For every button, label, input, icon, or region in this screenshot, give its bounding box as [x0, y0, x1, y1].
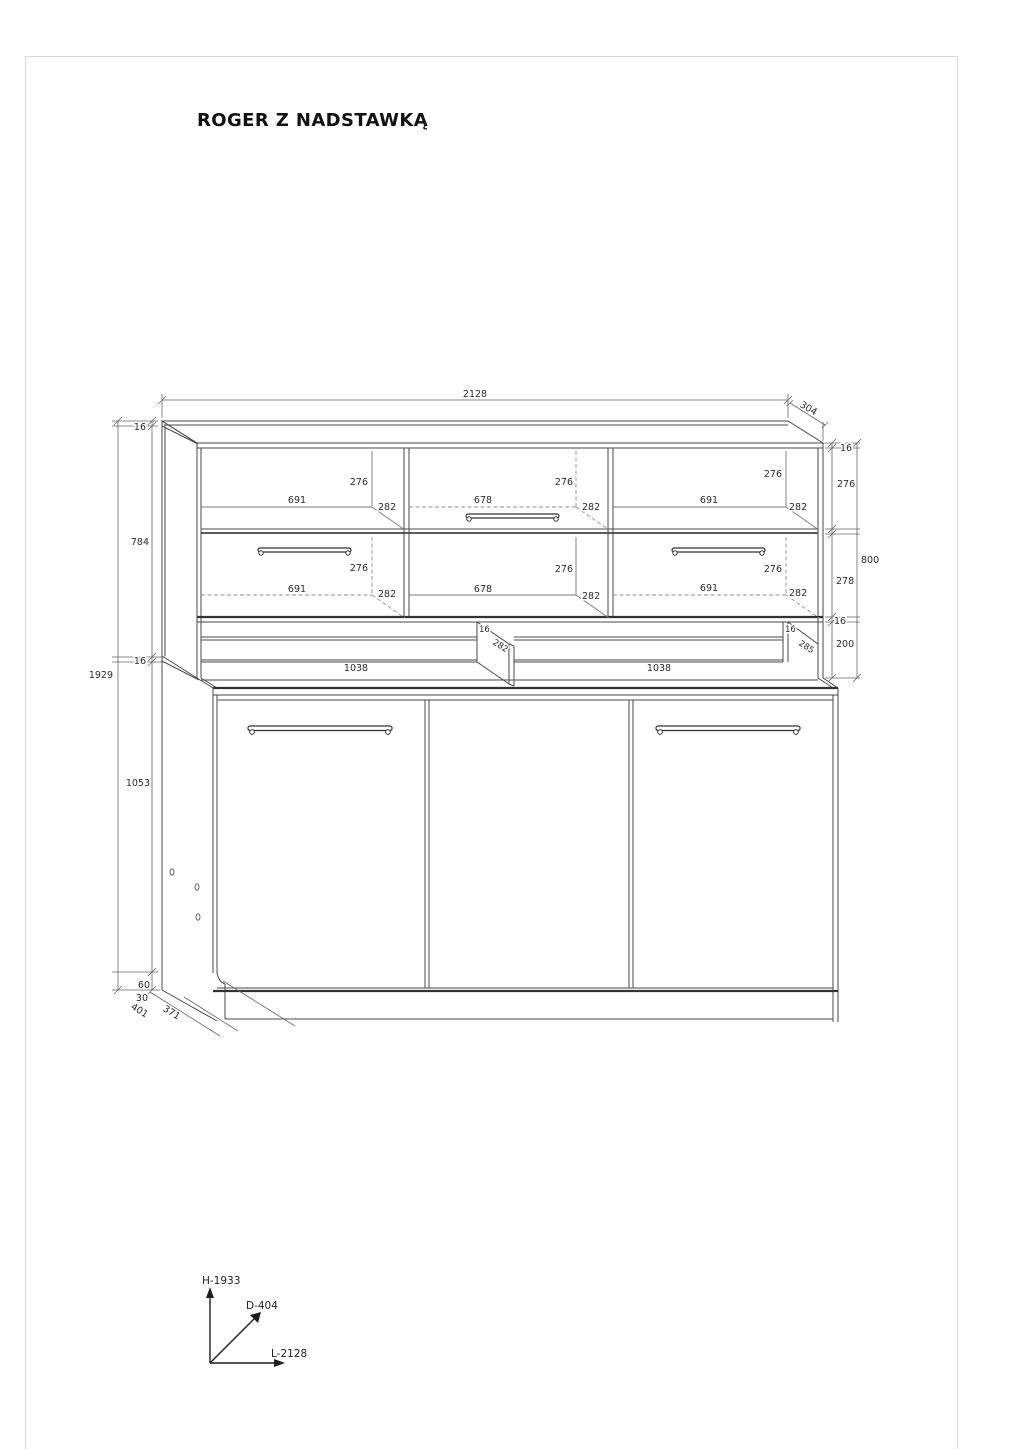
dim-thk-right-top: 16 — [840, 443, 852, 454]
dim-plinth-height: 60 — [138, 980, 150, 991]
dim-br-height: 276 — [764, 564, 782, 575]
dim-tm-width: 678 — [474, 495, 492, 506]
dim-thk-top: 16 — [134, 422, 146, 433]
axis-label-length: L-2128 — [271, 1348, 307, 1360]
dim-base-height: 1053 — [126, 778, 150, 789]
dim-br-depth: 282 — [789, 588, 807, 599]
dim-thk-hutch-bottom: 16 — [134, 656, 146, 667]
dim-tl-depth: 282 — [378, 502, 396, 513]
dim-tm-height: 276 — [555, 477, 573, 488]
dim-row-top-height: 276 — [837, 479, 855, 490]
dim-tr-width: 691 — [700, 495, 718, 506]
sheet-border — [26, 57, 958, 1449]
dim-bl-width: 691 — [288, 584, 306, 595]
dim-gap-opening-right: 1038 — [647, 663, 671, 674]
dim-tl-height: 276 — [350, 477, 368, 488]
axis-label-height: H-1933 — [202, 1275, 240, 1287]
dim-tr-depth: 282 — [789, 502, 807, 513]
technical-drawing-page: ROGER Z NADSTAWKĄ — [0, 0, 1024, 1449]
dim-bm-width: 678 — [474, 584, 492, 595]
dim-height-total: 1929 — [89, 670, 113, 681]
dim-width-total: 2128 — [463, 389, 487, 400]
drawing-title: ROGER Z NADSTAWKĄ — [197, 110, 428, 131]
dim-row-bottom-height: 278 — [836, 576, 854, 587]
dim-br-width: 691 — [700, 583, 718, 594]
dim-hutch-inner-height: 784 — [131, 537, 149, 548]
dim-gap-divider-thk: 16 — [479, 625, 490, 635]
dim-tr-height: 276 — [764, 469, 782, 480]
dim-hutch-height: 800 — [861, 555, 879, 566]
axis-label-depth: D-404 — [246, 1300, 278, 1312]
dim-thk-right-bottom: 16 — [834, 616, 846, 627]
dim-gap-right-thk: 16 — [785, 625, 796, 635]
dim-gap-opening-left: 1038 — [344, 663, 368, 674]
dim-bl-depth: 282 — [378, 589, 396, 600]
dim-tm-depth: 282 — [582, 502, 600, 513]
dim-tl-width: 691 — [288, 495, 306, 506]
dim-bm-depth: 282 — [582, 591, 600, 602]
dim-bl-height: 276 — [350, 563, 368, 574]
dim-bm-height: 276 — [555, 564, 573, 575]
dim-gap-height: 200 — [836, 639, 854, 650]
